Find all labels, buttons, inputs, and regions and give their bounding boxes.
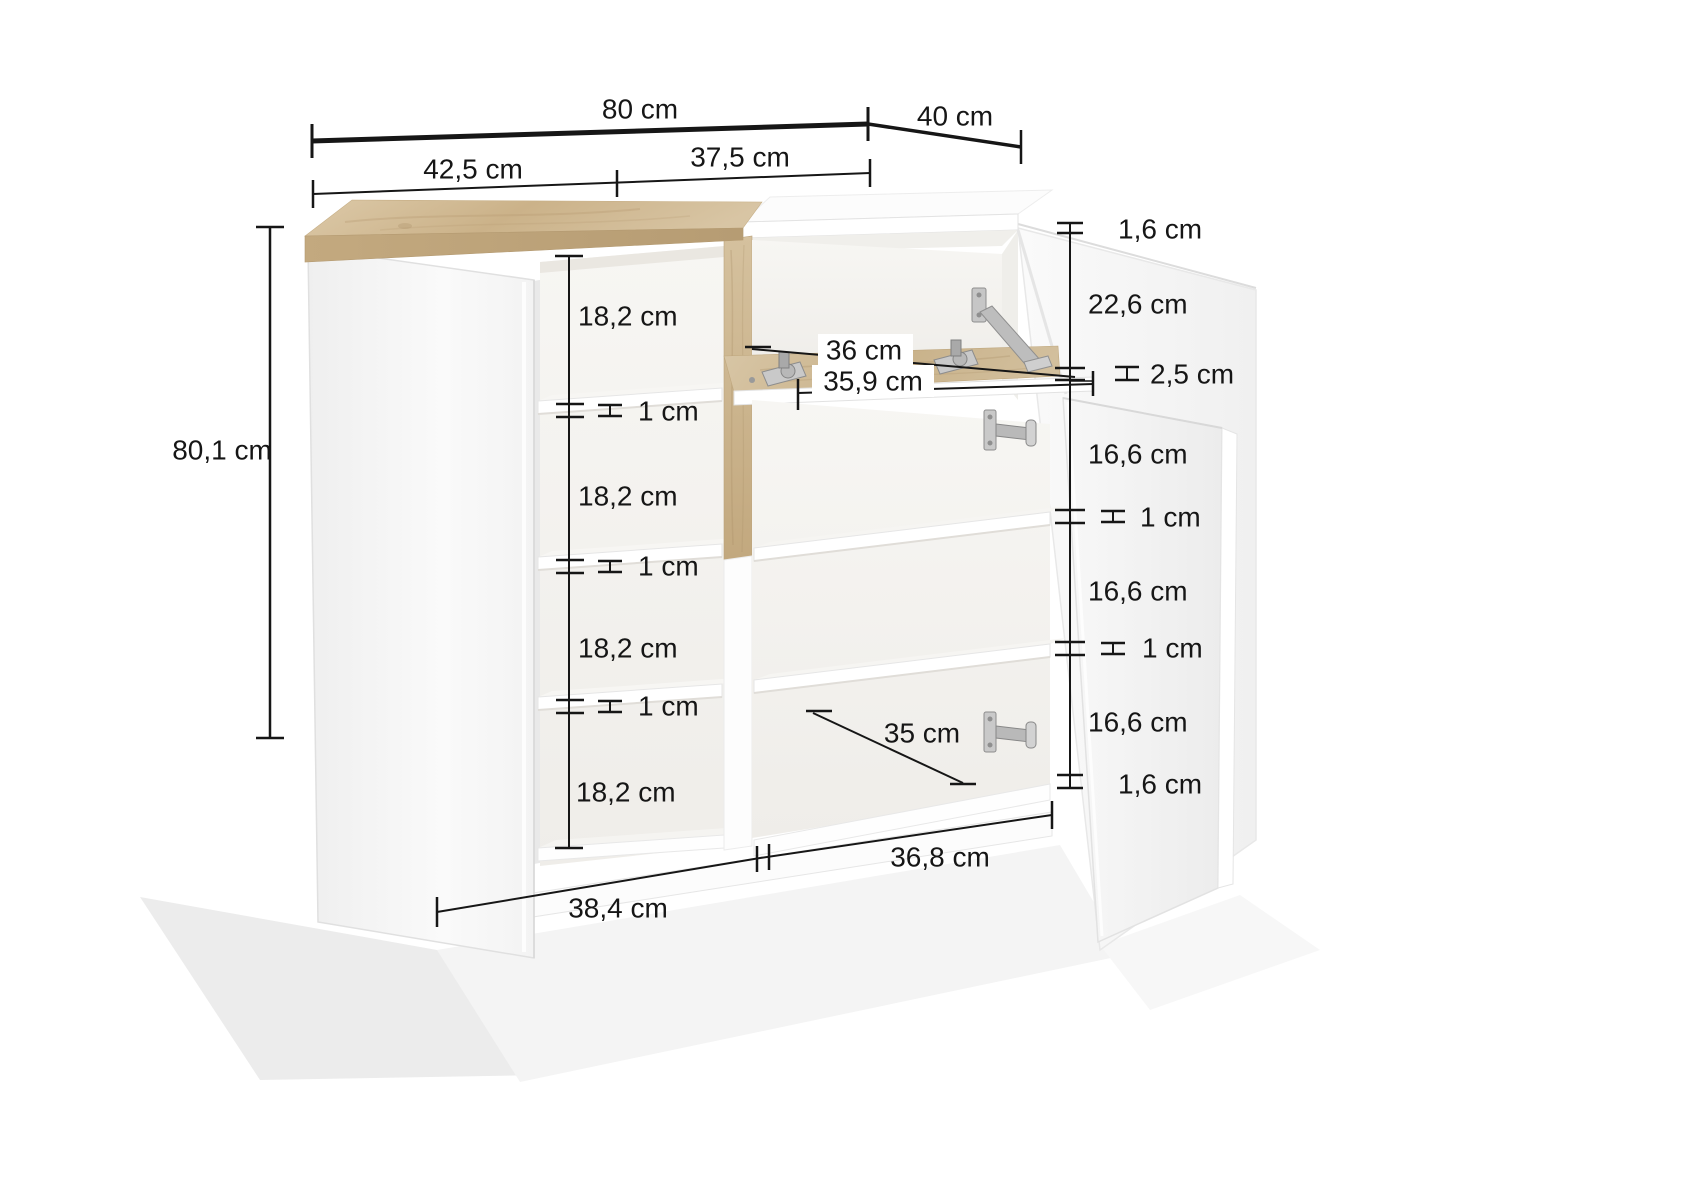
dim-interior-depth-label: 35 cm [884, 718, 960, 749]
dim-height: 80,1 cm [172, 227, 284, 738]
dim-left-shelf-th-1-label: 1 cm [638, 396, 699, 427]
dim-depth: 40 cm [868, 101, 1021, 165]
dim-left-section-width-label: 42,5 cm [423, 154, 523, 185]
dim-right-gap-3-label: 16,6 cm [1088, 707, 1188, 738]
floor-shadow-center [437, 845, 1125, 1082]
dim-left-shelf-th-3-label: 1 cm [638, 691, 699, 722]
wood-divider [724, 236, 752, 850]
dim-height-label: 80,1 cm [172, 435, 272, 466]
dimension-drawing-page: 80 cm 40 cm 42,5 cm 37,5 cm 80,1 cm [0, 0, 1695, 1200]
furniture-dimension-drawing: 80 cm 40 cm 42,5 cm 37,5 cm 80,1 cm [0, 0, 1695, 1200]
dim-left-gap-3-label: 18,2 cm [578, 633, 678, 664]
dim-left-gap-4-label: 18,2 cm [576, 777, 676, 808]
dim-flap-width-label: 35,9 cm [823, 366, 923, 397]
dim-right-shelf-th-2-label: 1 cm [1142, 633, 1203, 664]
dim-bottom-thickness-label: 1,6 cm [1118, 769, 1202, 800]
dim-flap-depth-label: 36 cm [826, 335, 902, 366]
dim-right-gap-1-label: 16,6 cm [1088, 439, 1188, 470]
dim-right-shelf-th-1-label: 1 cm [1140, 502, 1201, 533]
dim-left-gap-1-label: 18,2 cm [578, 301, 678, 332]
right-compartment-interior [752, 400, 1066, 856]
dim-left-shelf-th-2-label: 1 cm [638, 551, 699, 582]
dim-total-width-label: 80 cm [602, 94, 678, 125]
dim-flap-opening-label: 22,6 cm [1088, 289, 1188, 320]
dim-right-gap-2-label: 16,6 cm [1088, 576, 1188, 607]
dim-left-gap-2-label: 18,2 cm [578, 481, 678, 512]
dim-top-thickness-label: 1,6 cm [1118, 214, 1202, 245]
dim-flap-thickness-label: 2,5 cm [1150, 359, 1234, 390]
left-door[interactable] [308, 248, 534, 958]
dim-left-door-width-label: 38,4 cm [568, 893, 668, 924]
dim-depth-label: 40 cm [917, 101, 993, 132]
dim-right-section-width-label: 37,5 cm [690, 142, 790, 173]
left-compartment-interior [534, 246, 740, 866]
dim-right-door-width-label: 36,8 cm [890, 842, 990, 873]
